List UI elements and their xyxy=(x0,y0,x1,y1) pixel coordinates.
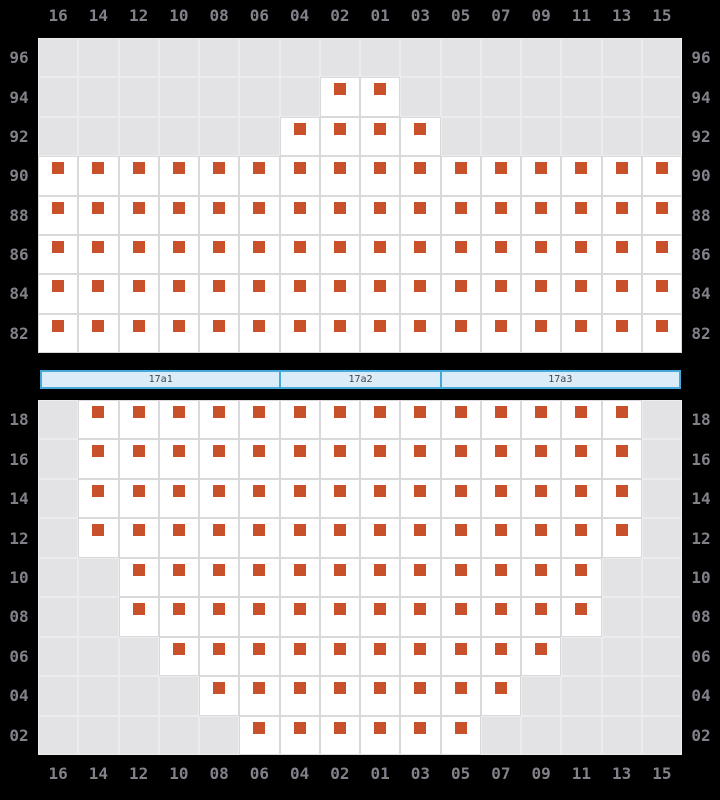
seat-marker-icon xyxy=(213,682,225,694)
seat-cell-top-90-09[interactable] xyxy=(521,156,561,195)
seat-marker-icon xyxy=(495,564,507,576)
seat-marker-icon xyxy=(294,406,306,418)
seat-cell-bottom-12-02[interactable] xyxy=(320,518,360,557)
empty-cell-bottom-04-14 xyxy=(78,676,118,715)
seat-cell-bottom-12-14[interactable] xyxy=(78,518,118,557)
seat-cell-bottom-16-09[interactable] xyxy=(521,439,561,478)
empty-cell-top-96-07 xyxy=(481,38,521,77)
empty-cell-top-92-10 xyxy=(159,117,199,156)
row-label-right-bottom-02: 02 xyxy=(682,716,720,755)
seat-cell-bottom-04-05[interactable] xyxy=(441,676,481,715)
seat-cell-bottom-06-10[interactable] xyxy=(159,637,199,676)
seat-cell-bottom-02-02[interactable] xyxy=(320,716,360,755)
seat-cell-top-90-06[interactable] xyxy=(239,156,279,195)
seat-cell-bottom-02-03[interactable] xyxy=(400,716,440,755)
row-label-right-bottom-06: 06 xyxy=(682,637,720,676)
seat-marker-icon xyxy=(455,603,467,615)
seat-cell-bottom-16-03[interactable] xyxy=(400,439,440,478)
section-bar-segment-17a2[interactable]: 17a2 xyxy=(281,372,441,387)
seat-cell-top-82-04[interactable] xyxy=(280,314,320,353)
row-label-right-bottom-18: 18 xyxy=(682,400,720,439)
top-column-axis: 16141210080604020103050709111315 xyxy=(0,0,720,38)
seat-cell-bottom-16-05[interactable] xyxy=(441,439,481,478)
seat-cell-top-90-08[interactable] xyxy=(199,156,239,195)
empty-cell-top-92-06 xyxy=(239,117,279,156)
empty-cell-bottom-14-15 xyxy=(642,479,682,518)
seat-cell-top-84-05[interactable] xyxy=(441,274,481,313)
empty-cell-bottom-02-12 xyxy=(119,716,159,755)
seat-cell-top-84-01[interactable] xyxy=(360,274,400,313)
seat-marker-icon xyxy=(535,202,547,214)
seat-marker-icon xyxy=(656,162,668,174)
seat-marker-icon xyxy=(92,485,104,497)
section-divider-bar-wrap: 17a117a217a3 xyxy=(0,353,720,400)
seat-cell-bottom-18-01[interactable] xyxy=(360,400,400,439)
seat-map: 16141210080604020103050709111315 9696949… xyxy=(0,0,720,800)
seat-cell-bottom-12-11[interactable] xyxy=(561,518,601,557)
section-bar-segment-17a3[interactable]: 17a3 xyxy=(442,372,679,387)
seat-marker-icon xyxy=(334,524,346,536)
empty-cell-top-96-03 xyxy=(400,38,440,77)
seat-cell-top-86-12[interactable] xyxy=(119,235,159,274)
seat-marker-icon xyxy=(253,722,265,734)
seat-cell-bottom-14-07[interactable] xyxy=(481,479,521,518)
seat-cell-bottom-12-12[interactable] xyxy=(119,518,159,557)
seat-cell-bottom-08-09[interactable] xyxy=(521,597,561,636)
empty-cell-bottom-12-16 xyxy=(38,518,78,557)
empty-cell-bottom-08-16 xyxy=(38,597,78,636)
seat-marker-icon xyxy=(334,564,346,576)
seat-cell-top-90-16[interactable] xyxy=(38,156,78,195)
seat-cell-top-92-03[interactable] xyxy=(400,117,440,156)
seat-cell-top-82-07[interactable] xyxy=(481,314,521,353)
empty-cell-top-94-09 xyxy=(521,77,561,116)
seat-cell-bottom-18-13[interactable] xyxy=(602,400,642,439)
seat-cell-top-90-10[interactable] xyxy=(159,156,199,195)
seat-marker-icon xyxy=(535,320,547,332)
seat-marker-icon xyxy=(294,280,306,292)
seat-cell-top-88-10[interactable] xyxy=(159,196,199,235)
seat-cell-bottom-14-14[interactable] xyxy=(78,479,118,518)
seat-cell-bottom-08-03[interactable] xyxy=(400,597,440,636)
seat-cell-top-84-09[interactable] xyxy=(521,274,561,313)
seat-cell-top-84-14[interactable] xyxy=(78,274,118,313)
seat-cell-top-82-01[interactable] xyxy=(360,314,400,353)
seat-cell-bottom-12-01[interactable] xyxy=(360,518,400,557)
seat-cell-bottom-14-02[interactable] xyxy=(320,479,360,518)
seat-cell-bottom-06-04[interactable] xyxy=(280,637,320,676)
row-label-left-top-90: 90 xyxy=(0,156,38,195)
seat-cell-bottom-04-01[interactable] xyxy=(360,676,400,715)
seat-marker-icon xyxy=(495,524,507,536)
seat-cell-top-88-06[interactable] xyxy=(239,196,279,235)
seat-cell-top-84-07[interactable] xyxy=(481,274,521,313)
seat-cell-bottom-10-08[interactable] xyxy=(199,558,239,597)
seat-cell-top-84-10[interactable] xyxy=(159,274,199,313)
seat-cell-bottom-18-06[interactable] xyxy=(239,400,279,439)
seat-cell-bottom-02-06[interactable] xyxy=(239,716,279,755)
seat-cell-bottom-18-10[interactable] xyxy=(159,400,199,439)
seat-marker-icon xyxy=(495,643,507,655)
seat-cell-bottom-08-12[interactable] xyxy=(119,597,159,636)
seat-marker-icon xyxy=(133,564,145,576)
seat-cell-top-86-13[interactable] xyxy=(602,235,642,274)
seat-cell-top-82-06[interactable] xyxy=(239,314,279,353)
seat-cell-bottom-06-09[interactable] xyxy=(521,637,561,676)
empty-cell-top-96-16 xyxy=(38,38,78,77)
seat-marker-icon xyxy=(294,722,306,734)
empty-cell-top-96-04 xyxy=(280,38,320,77)
seat-cell-bottom-10-04[interactable] xyxy=(280,558,320,597)
seat-cell-bottom-10-06[interactable] xyxy=(239,558,279,597)
seat-marker-icon xyxy=(133,485,145,497)
row-label-left-top-88: 88 xyxy=(0,196,38,235)
seat-cell-bottom-18-03[interactable] xyxy=(400,400,440,439)
seat-cell-top-84-13[interactable] xyxy=(602,274,642,313)
seat-cell-bottom-06-05[interactable] xyxy=(441,637,481,676)
seat-cell-bottom-10-10[interactable] xyxy=(159,558,199,597)
seat-cell-bottom-10-07[interactable] xyxy=(481,558,521,597)
seat-cell-top-90-02[interactable] xyxy=(320,156,360,195)
seat-cell-top-82-05[interactable] xyxy=(441,314,481,353)
seat-cell-top-88-07[interactable] xyxy=(481,196,521,235)
seat-cell-top-84-15[interactable] xyxy=(642,274,682,313)
empty-cell-bottom-06-15 xyxy=(642,637,682,676)
seat-cell-bottom-06-03[interactable] xyxy=(400,637,440,676)
seat-cell-bottom-12-10[interactable] xyxy=(159,518,199,557)
seat-cell-top-88-14[interactable] xyxy=(78,196,118,235)
seat-cell-bottom-16-02[interactable] xyxy=(320,439,360,478)
row-label-right-top-90: 90 xyxy=(682,156,720,195)
seat-cell-bottom-10-09[interactable] xyxy=(521,558,561,597)
seat-marker-icon xyxy=(575,603,587,615)
axis-corner xyxy=(682,755,720,800)
seat-cell-bottom-14-12[interactable] xyxy=(119,479,159,518)
seat-cell-bottom-10-05[interactable] xyxy=(441,558,481,597)
seat-cell-top-82-15[interactable] xyxy=(642,314,682,353)
row-label-right-top-96: 96 xyxy=(682,38,720,77)
seat-cell-bottom-18-08[interactable] xyxy=(199,400,239,439)
seat-cell-bottom-10-11[interactable] xyxy=(561,558,601,597)
seat-cell-bottom-06-02[interactable] xyxy=(320,637,360,676)
seat-cell-top-90-15[interactable] xyxy=(642,156,682,195)
seat-cell-bottom-16-08[interactable] xyxy=(199,439,239,478)
seat-cell-top-86-03[interactable] xyxy=(400,235,440,274)
seat-cell-top-84-16[interactable] xyxy=(38,274,78,313)
seat-cell-bottom-14-11[interactable] xyxy=(561,479,601,518)
seat-cell-bottom-06-08[interactable] xyxy=(199,637,239,676)
seat-marker-icon xyxy=(213,280,225,292)
seat-marker-icon xyxy=(374,241,386,253)
row-label-right-top-86: 86 xyxy=(682,235,720,274)
seat-cell-bottom-16-04[interactable] xyxy=(280,439,320,478)
seat-marker-icon xyxy=(213,603,225,615)
seat-cell-top-86-10[interactable] xyxy=(159,235,199,274)
empty-cell-bottom-10-15 xyxy=(642,558,682,597)
seat-cell-bottom-16-07[interactable] xyxy=(481,439,521,478)
seat-cell-bottom-12-05[interactable] xyxy=(441,518,481,557)
seat-cell-bottom-08-06[interactable] xyxy=(239,597,279,636)
seat-marker-icon xyxy=(334,722,346,734)
seat-cell-top-90-01[interactable] xyxy=(360,156,400,195)
seat-cell-bottom-18-11[interactable] xyxy=(561,400,601,439)
row-label-left-bottom-16: 16 xyxy=(0,439,38,478)
seat-cell-top-90-12[interactable] xyxy=(119,156,159,195)
column-label-top-04: 04 xyxy=(280,0,320,38)
empty-cell-bottom-10-16 xyxy=(38,558,78,597)
column-label-top-12: 12 xyxy=(119,0,159,38)
seat-cell-bottom-16-10[interactable] xyxy=(159,439,199,478)
empty-cell-bottom-16-16 xyxy=(38,439,78,478)
empty-cell-top-94-07 xyxy=(481,77,521,116)
seat-cell-bottom-08-04[interactable] xyxy=(280,597,320,636)
seat-cell-top-86-15[interactable] xyxy=(642,235,682,274)
seat-cell-bottom-02-04[interactable] xyxy=(280,716,320,755)
seat-cell-top-82-08[interactable] xyxy=(199,314,239,353)
seat-marker-icon xyxy=(253,643,265,655)
seat-cell-top-88-08[interactable] xyxy=(199,196,239,235)
seat-cell-top-82-02[interactable] xyxy=(320,314,360,353)
seat-cell-top-88-02[interactable] xyxy=(320,196,360,235)
seat-cell-bottom-16-06[interactable] xyxy=(239,439,279,478)
seat-cell-top-86-11[interactable] xyxy=(561,235,601,274)
seat-cell-top-88-15[interactable] xyxy=(642,196,682,235)
seat-cell-bottom-18-09[interactable] xyxy=(521,400,561,439)
seat-cell-bottom-04-02[interactable] xyxy=(320,676,360,715)
seat-cell-top-84-04[interactable] xyxy=(280,274,320,313)
seat-cell-top-84-12[interactable] xyxy=(119,274,159,313)
seat-cell-top-86-09[interactable] xyxy=(521,235,561,274)
seat-cell-top-84-11[interactable] xyxy=(561,274,601,313)
seat-cell-bottom-08-02[interactable] xyxy=(320,597,360,636)
empty-cell-bottom-06-12 xyxy=(119,637,159,676)
seat-cell-top-88-16[interactable] xyxy=(38,196,78,235)
seat-cell-bottom-06-01[interactable] xyxy=(360,637,400,676)
seat-marker-icon xyxy=(213,406,225,418)
seat-marker-icon xyxy=(334,83,346,95)
seat-cell-bottom-14-03[interactable] xyxy=(400,479,440,518)
seat-cell-bottom-18-07[interactable] xyxy=(481,400,521,439)
seat-cell-top-90-13[interactable] xyxy=(602,156,642,195)
seat-cell-top-88-03[interactable] xyxy=(400,196,440,235)
seat-cell-bottom-16-13[interactable] xyxy=(602,439,642,478)
seat-cell-top-92-04[interactable] xyxy=(280,117,320,156)
seat-cell-bottom-02-01[interactable] xyxy=(360,716,400,755)
seat-cell-bottom-02-05[interactable] xyxy=(441,716,481,755)
seat-cell-bottom-08-11[interactable] xyxy=(561,597,601,636)
seat-cell-top-86-06[interactable] xyxy=(239,235,279,274)
seat-marker-icon xyxy=(334,320,346,332)
top-seat-grid: 96969494929290908888868684848282 xyxy=(0,38,720,353)
empty-cell-bottom-10-14 xyxy=(78,558,118,597)
seat-cell-top-86-14[interactable] xyxy=(78,235,118,274)
seat-cell-top-90-05[interactable] xyxy=(441,156,481,195)
seat-cell-top-88-12[interactable] xyxy=(119,196,159,235)
seat-cell-bottom-10-02[interactable] xyxy=(320,558,360,597)
seat-cell-top-86-07[interactable] xyxy=(481,235,521,274)
seat-cell-top-82-03[interactable] xyxy=(400,314,440,353)
seat-cell-bottom-04-06[interactable] xyxy=(239,676,279,715)
empty-cell-top-92-16 xyxy=(38,117,78,156)
seat-cell-bottom-14-01[interactable] xyxy=(360,479,400,518)
seat-marker-icon xyxy=(455,643,467,655)
seat-cell-bottom-14-05[interactable] xyxy=(441,479,481,518)
column-label-top-02: 02 xyxy=(320,0,360,38)
column-label-top-07: 07 xyxy=(481,0,521,38)
empty-cell-bottom-02-16 xyxy=(38,716,78,755)
seat-cell-bottom-16-11[interactable] xyxy=(561,439,601,478)
seat-cell-bottom-04-07[interactable] xyxy=(481,676,521,715)
seat-cell-bottom-18-05[interactable] xyxy=(441,400,481,439)
seat-cell-bottom-12-04[interactable] xyxy=(280,518,320,557)
seat-marker-icon xyxy=(455,445,467,457)
seat-cell-bottom-04-03[interactable] xyxy=(400,676,440,715)
seat-cell-top-82-11[interactable] xyxy=(561,314,601,353)
seat-cell-bottom-14-13[interactable] xyxy=(602,479,642,518)
seat-cell-top-82-14[interactable] xyxy=(78,314,118,353)
seat-cell-bottom-12-09[interactable] xyxy=(521,518,561,557)
seat-marker-icon xyxy=(173,320,185,332)
seat-marker-icon xyxy=(253,485,265,497)
seat-cell-bottom-12-08[interactable] xyxy=(199,518,239,557)
seat-cell-top-90-04[interactable] xyxy=(280,156,320,195)
seat-cell-bottom-10-12[interactable] xyxy=(119,558,159,597)
row-label-left-top-94: 94 xyxy=(0,77,38,116)
seat-marker-icon xyxy=(92,406,104,418)
seat-cell-top-86-16[interactable] xyxy=(38,235,78,274)
empty-cell-top-94-14 xyxy=(78,77,118,116)
seat-marker-icon xyxy=(374,320,386,332)
seat-cell-bottom-14-04[interactable] xyxy=(280,479,320,518)
seat-cell-top-82-12[interactable] xyxy=(119,314,159,353)
seat-cell-top-82-13[interactable] xyxy=(602,314,642,353)
seat-cell-top-86-08[interactable] xyxy=(199,235,239,274)
seat-cell-bottom-14-10[interactable] xyxy=(159,479,199,518)
seat-cell-bottom-04-08[interactable] xyxy=(199,676,239,715)
seat-cell-top-88-11[interactable] xyxy=(561,196,601,235)
seat-cell-bottom-12-06[interactable] xyxy=(239,518,279,557)
empty-cell-top-96-05 xyxy=(441,38,481,77)
seat-cell-top-90-07[interactable] xyxy=(481,156,521,195)
seat-cell-top-84-08[interactable] xyxy=(199,274,239,313)
seat-marker-icon xyxy=(455,406,467,418)
seat-marker-icon xyxy=(294,162,306,174)
seat-marker-icon xyxy=(92,320,104,332)
column-label-bottom-13: 13 xyxy=(602,755,642,800)
seat-cell-top-90-14[interactable] xyxy=(78,156,118,195)
seat-cell-bottom-14-09[interactable] xyxy=(521,479,561,518)
seat-marker-icon xyxy=(455,524,467,536)
seat-cell-bottom-06-06[interactable] xyxy=(239,637,279,676)
row-label-right-top-82: 82 xyxy=(682,314,720,353)
seat-marker-icon xyxy=(133,603,145,615)
column-label-bottom-08: 08 xyxy=(199,755,239,800)
seat-marker-icon xyxy=(455,280,467,292)
seat-cell-bottom-08-05[interactable] xyxy=(441,597,481,636)
seat-cell-top-90-11[interactable] xyxy=(561,156,601,195)
seat-marker-icon xyxy=(52,162,64,174)
seat-cell-top-86-05[interactable] xyxy=(441,235,481,274)
empty-cell-top-92-14 xyxy=(78,117,118,156)
section-bar-segment-17a1[interactable]: 17a1 xyxy=(42,372,281,387)
seat-cell-top-88-01[interactable] xyxy=(360,196,400,235)
seat-cell-bottom-08-07[interactable] xyxy=(481,597,521,636)
row-label-right-top-84: 84 xyxy=(682,274,720,313)
seat-cell-bottom-18-04[interactable] xyxy=(280,400,320,439)
seat-cell-bottom-16-01[interactable] xyxy=(360,439,400,478)
seat-cell-top-82-16[interactable] xyxy=(38,314,78,353)
empty-cell-bottom-16-15 xyxy=(642,439,682,478)
row-label-left-bottom-08: 08 xyxy=(0,597,38,636)
seat-cell-bottom-14-08[interactable] xyxy=(199,479,239,518)
seat-cell-top-88-09[interactable] xyxy=(521,196,561,235)
seat-marker-icon xyxy=(414,445,426,457)
seat-cell-top-90-03[interactable] xyxy=(400,156,440,195)
seat-marker-icon xyxy=(374,406,386,418)
seat-marker-icon xyxy=(616,524,628,536)
seat-cell-bottom-18-12[interactable] xyxy=(119,400,159,439)
seat-marker-icon xyxy=(535,406,547,418)
seat-marker-icon xyxy=(414,564,426,576)
seat-cell-bottom-10-03[interactable] xyxy=(400,558,440,597)
seat-cell-bottom-08-01[interactable] xyxy=(360,597,400,636)
seat-cell-top-82-09[interactable] xyxy=(521,314,561,353)
seat-cell-top-88-13[interactable] xyxy=(602,196,642,235)
seat-cell-bottom-18-14[interactable] xyxy=(78,400,118,439)
seat-cell-bottom-08-08[interactable] xyxy=(199,597,239,636)
column-label-bottom-01: 01 xyxy=(360,755,400,800)
seat-cell-top-84-03[interactable] xyxy=(400,274,440,313)
seat-cell-top-86-04[interactable] xyxy=(280,235,320,274)
seat-cell-bottom-14-06[interactable] xyxy=(239,479,279,518)
seat-cell-top-92-02[interactable] xyxy=(320,117,360,156)
seat-cell-top-94-01[interactable] xyxy=(360,77,400,116)
seat-cell-bottom-16-12[interactable] xyxy=(119,439,159,478)
seat-cell-bottom-10-01[interactable] xyxy=(360,558,400,597)
seat-cell-bottom-04-04[interactable] xyxy=(280,676,320,715)
seat-cell-top-92-01[interactable] xyxy=(360,117,400,156)
seat-cell-bottom-12-07[interactable] xyxy=(481,518,521,557)
seat-cell-top-86-02[interactable] xyxy=(320,235,360,274)
seat-cell-top-88-04[interactable] xyxy=(280,196,320,235)
column-label-top-13: 13 xyxy=(602,0,642,38)
empty-cell-bottom-06-14 xyxy=(78,637,118,676)
seat-cell-bottom-16-14[interactable] xyxy=(78,439,118,478)
seat-marker-icon xyxy=(173,564,185,576)
seat-marker-icon xyxy=(52,202,64,214)
seat-cell-top-84-06[interactable] xyxy=(239,274,279,313)
seat-marker-icon xyxy=(575,485,587,497)
seat-marker-icon xyxy=(374,162,386,174)
seat-cell-top-94-02[interactable] xyxy=(320,77,360,116)
seat-marker-icon xyxy=(455,722,467,734)
seat-cell-bottom-06-07[interactable] xyxy=(481,637,521,676)
row-label-left-bottom-04: 04 xyxy=(0,676,38,715)
seat-cell-bottom-08-10[interactable] xyxy=(159,597,199,636)
seat-marker-icon xyxy=(334,123,346,135)
seat-cell-top-88-05[interactable] xyxy=(441,196,481,235)
seat-cell-bottom-18-02[interactable] xyxy=(320,400,360,439)
empty-cell-top-94-15 xyxy=(642,77,682,116)
column-label-top-16: 16 xyxy=(38,0,78,38)
seat-cell-top-82-10[interactable] xyxy=(159,314,199,353)
seat-cell-bottom-12-03[interactable] xyxy=(400,518,440,557)
seat-marker-icon xyxy=(334,202,346,214)
seat-cell-top-86-01[interactable] xyxy=(360,235,400,274)
seat-cell-top-84-02[interactable] xyxy=(320,274,360,313)
empty-cell-bottom-06-16 xyxy=(38,637,78,676)
seat-cell-bottom-12-13[interactable] xyxy=(602,518,642,557)
